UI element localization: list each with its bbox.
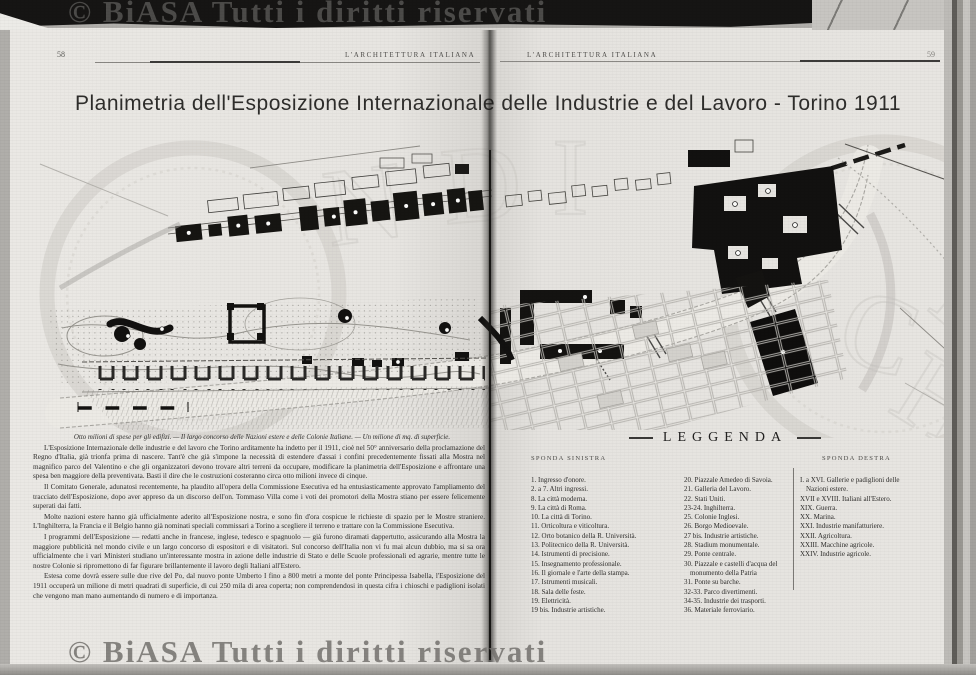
legend-column-3: I. a XVI. Gallerie e padiglioni delle Na… xyxy=(800,476,918,560)
legend-column-1: 1. Ingresso d'onore. 2. a 7. Altri ingre… xyxy=(531,476,679,615)
legend-rule-right xyxy=(797,437,821,439)
legend-item: 1. Ingresso d'onore. xyxy=(531,476,679,485)
article-paragraph: I programmi dell'Esposizione — redatti a… xyxy=(33,533,485,571)
legend-item: 19 bis. Industrie artistiche. xyxy=(531,606,679,615)
legend-item: 25. Colonie Inglesi. xyxy=(684,513,788,522)
legend-item: 31. Ponte su barche. xyxy=(684,578,788,587)
legend-item: 34-35. Industrie dei trasporti. xyxy=(684,597,788,606)
article-paragraph: Estesa come dovrà essere sulle due rive … xyxy=(33,572,485,601)
svg-text:I: I xyxy=(552,128,589,238)
embankment-piers xyxy=(80,358,490,430)
article-text: Otto milioni di spese per gli edifizi. —… xyxy=(33,433,485,602)
article-paragraph: Il Comitato Generale, adunatosi recentem… xyxy=(33,483,485,512)
legend-item: 12. Orto botanico della R. Università. xyxy=(531,532,679,541)
legend-item: 11. Orticoltura e viticoltura. xyxy=(531,522,679,531)
legend-item: 19. Elettricità. xyxy=(531,597,679,606)
legend-column-2: 20. Piazzale Amedeo di Savoia. 21. Galle… xyxy=(684,476,788,615)
article-paragraph: Molte nazioni estere hanno già ufficialm… xyxy=(33,513,485,532)
legend-item: 26. Borgo Medioevale. xyxy=(684,522,788,531)
scan-bottom-edge xyxy=(0,664,976,675)
page-number-right: 59 xyxy=(927,50,935,59)
legend-item: 22. Stati Uniti. xyxy=(684,495,788,504)
running-head-left: L'ARCHITETTURA ITALIANA xyxy=(345,51,475,59)
legend-item: XXI. Industrie manifatturiere. xyxy=(800,522,918,531)
legend-item: 21. Galleria del Lavoro. xyxy=(684,485,788,494)
legend-item: 13. Politecnico della R. Università. xyxy=(531,541,679,550)
legend-item: 23-24. Inghilterra. xyxy=(684,504,788,513)
legend-item: XIX. Guerra. xyxy=(800,504,918,513)
article-paragraph: L'Esposizione Internazionale delle indus… xyxy=(33,444,485,482)
legend-divider xyxy=(793,468,794,590)
running-head-right: L'ARCHITETTURA ITALIANA xyxy=(527,51,657,59)
legend-item: 30. Piazzale e castelli d'acqua del monu… xyxy=(684,560,788,579)
head-rule-left-dark xyxy=(150,61,300,63)
head-rule-right-dark xyxy=(800,60,940,62)
legend-item: 14. Istrumenti di precisione. xyxy=(531,550,679,559)
legend-item: XVII e XVIII. Italiani all'Estero. xyxy=(800,495,918,504)
legend-item: I. a XVI. Gallerie e padiglioni delle Na… xyxy=(800,476,918,495)
legend-item: 17. Istrumenti musicali. xyxy=(531,578,679,587)
article-lead: Otto milioni di spese per gli edifizi. —… xyxy=(33,433,485,443)
legend-item: 10. La città di Torino. xyxy=(531,513,679,522)
library-watermark-top: © BiASA Tutti i diritti riservati xyxy=(68,0,547,30)
legend-item: XXIII. Macchine agricole. xyxy=(800,541,918,550)
legend-item: 15. Insegnamento professionale. xyxy=(531,560,679,569)
legend-item: 20. Piazzale Amedeo di Savoia. xyxy=(684,476,788,485)
legend-title-row: LEGGENDA xyxy=(600,430,850,446)
legend-item: 9. La città di Roma. xyxy=(531,504,679,513)
legend-item: 16. Il giornale e l'arte della stampa. xyxy=(531,569,679,578)
book-right-edge xyxy=(944,0,976,675)
legend-item: XXIV. Industrie agricole. xyxy=(800,550,918,559)
legend-title: LEGGENDA xyxy=(663,430,787,446)
legend-item: XXII. Agricoltura. xyxy=(800,532,918,541)
legend-item: 29. Ponte centrale. xyxy=(684,550,788,559)
legend-header-sponda-sinistra: SPONDA SINISTRA xyxy=(531,455,606,462)
legend-item: 2. a 7. Altri ingressi. xyxy=(531,485,679,494)
legend-item: 27 bis. Industrie artistiche. xyxy=(684,532,788,541)
legend-item: 32-33. Parco divertimenti. xyxy=(684,588,788,597)
legend-rule-left xyxy=(629,437,653,439)
legend-header-sponda-destra: SPONDA DESTRA xyxy=(822,455,891,462)
legend-item: 28. Stadium monumentale. xyxy=(684,541,788,550)
page-number-left: 58 xyxy=(57,50,65,59)
scanned-spread: © BiASA Tutti i diritti riservati 58 L'A… xyxy=(0,0,976,675)
legend-item: 36. Materiale ferroviario. xyxy=(684,606,788,615)
book-gutter-crease xyxy=(489,150,491,660)
legend-item: 18. Sala delle feste. xyxy=(531,588,679,597)
legend-item: 8. La città moderna. xyxy=(531,495,679,504)
legend-item: XX. Marina. xyxy=(800,513,918,522)
